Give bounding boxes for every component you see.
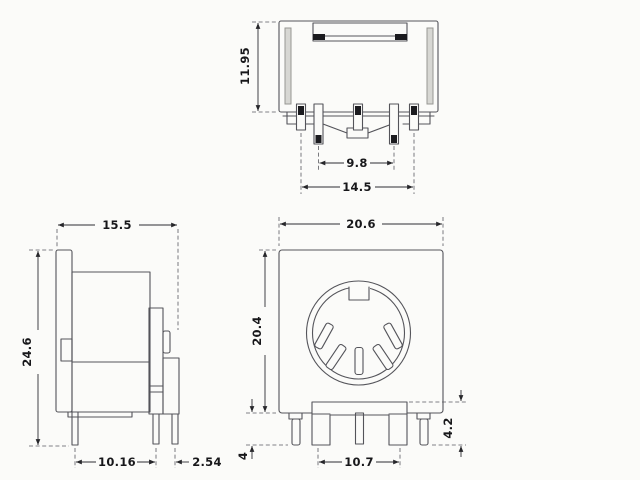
pin xyxy=(420,419,428,445)
technical-drawing: 11.95 9.8 14.5 15.5 xyxy=(0,0,640,480)
contact-slot xyxy=(383,322,403,349)
shield-bracket xyxy=(312,402,407,445)
dim-side-pin-offset: 10.16 xyxy=(98,455,136,469)
pin-tip xyxy=(298,106,304,115)
pin-tip xyxy=(355,106,361,115)
dim-side-depth: 15.5 xyxy=(102,218,132,232)
latch-slot-outline xyxy=(313,23,407,41)
rear-tab xyxy=(163,331,170,353)
pin-shoulder xyxy=(417,413,430,419)
top-view-body-outline xyxy=(279,21,438,112)
dim-side-pin-pitch: 2.54 xyxy=(192,455,222,469)
top-view: 11.95 9.8 14.5 xyxy=(238,21,438,194)
dim-top-outer-pin-pitch: 14.5 xyxy=(342,180,372,194)
dim-top-body-height: 11.95 xyxy=(238,47,252,85)
front-body-outline xyxy=(279,250,443,413)
drawing-canvas: 11.95 9.8 14.5 15.5 xyxy=(0,0,640,480)
pin xyxy=(172,414,178,444)
dim-top-inner-pin-pitch: 9.8 xyxy=(346,156,367,170)
contact-slot xyxy=(355,348,363,375)
rear-strip xyxy=(149,308,163,414)
contact-slot xyxy=(372,344,394,371)
front-flange-outline xyxy=(56,250,72,412)
front-view: 20.6 20.4 4 4.2 10.7 xyxy=(236,217,466,469)
pin-tip xyxy=(391,135,397,143)
tray-diagonal-right xyxy=(368,124,392,133)
dim-front-shield-tab-length: 4.2 xyxy=(441,417,455,438)
tray-diagonal-left xyxy=(323,124,347,133)
dim-side-overall-height: 24.6 xyxy=(20,337,34,367)
right-shell-slot xyxy=(427,28,433,104)
pin xyxy=(356,413,364,444)
contact-slot xyxy=(314,322,334,349)
keyway-mask xyxy=(349,283,370,299)
dim-front-body-height: 20.4 xyxy=(250,316,264,346)
side-body-outline xyxy=(72,272,150,412)
rear-block xyxy=(163,358,179,414)
latch-contact-left xyxy=(313,34,325,40)
pin xyxy=(153,414,159,444)
latch-contact-right xyxy=(395,34,407,40)
dim-front-shield-tab-pitch: 10.7 xyxy=(344,455,374,469)
side-view: 15.5 24.6 10.16 2.54 xyxy=(20,218,222,469)
pin-tip xyxy=(411,106,417,115)
left-shell-slot xyxy=(285,28,291,104)
contact-slot xyxy=(325,344,347,371)
pin-tip xyxy=(316,135,322,143)
pin-shoulder xyxy=(289,413,302,419)
pin xyxy=(292,419,300,445)
dim-front-pin-length: 4 xyxy=(236,452,250,460)
dim-front-body-width: 20.6 xyxy=(346,217,376,231)
flange-notch xyxy=(61,339,72,361)
